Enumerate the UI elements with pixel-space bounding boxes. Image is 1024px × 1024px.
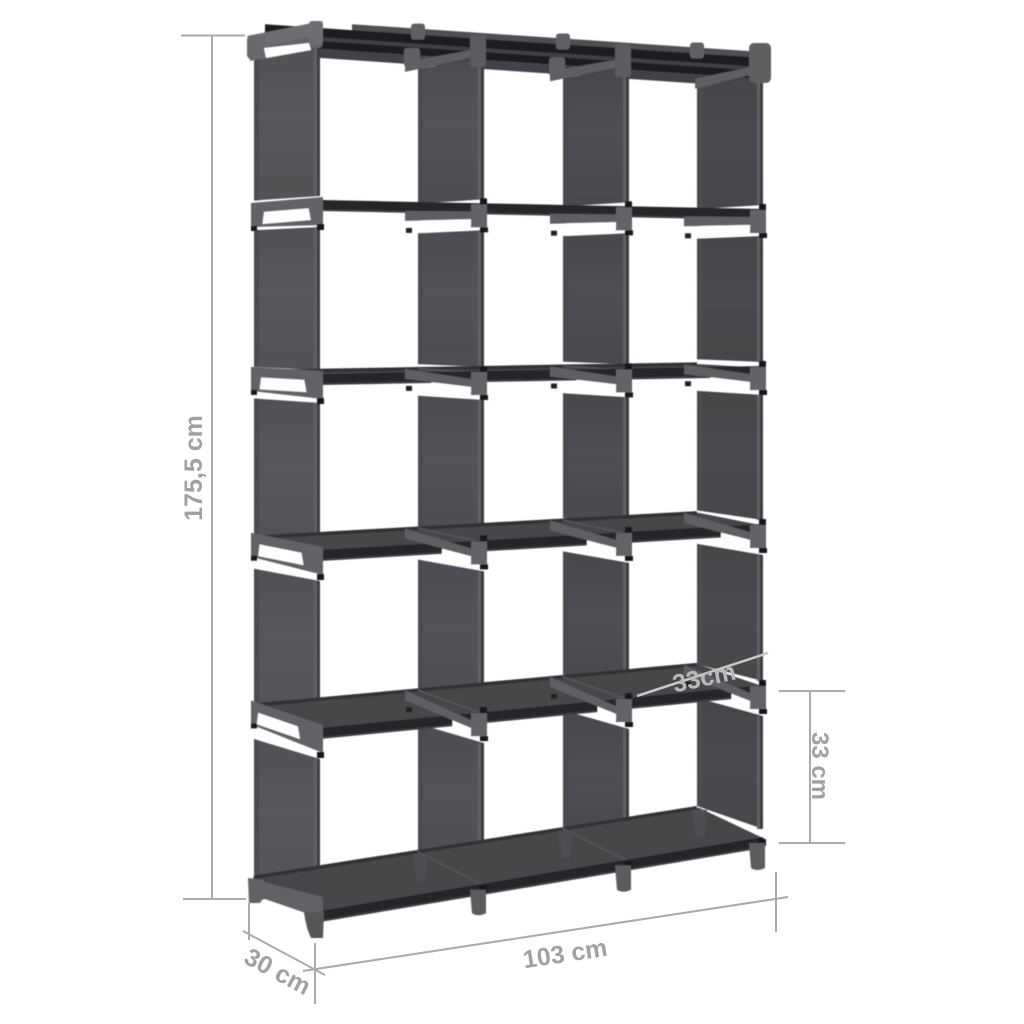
- svg-text:175,5 cm: 175,5 cm: [180, 415, 208, 521]
- svg-text:33 cm: 33 cm: [806, 732, 833, 800]
- svg-text:103 cm: 103 cm: [521, 934, 609, 974]
- svg-text:30 cm: 30 cm: [240, 943, 316, 1001]
